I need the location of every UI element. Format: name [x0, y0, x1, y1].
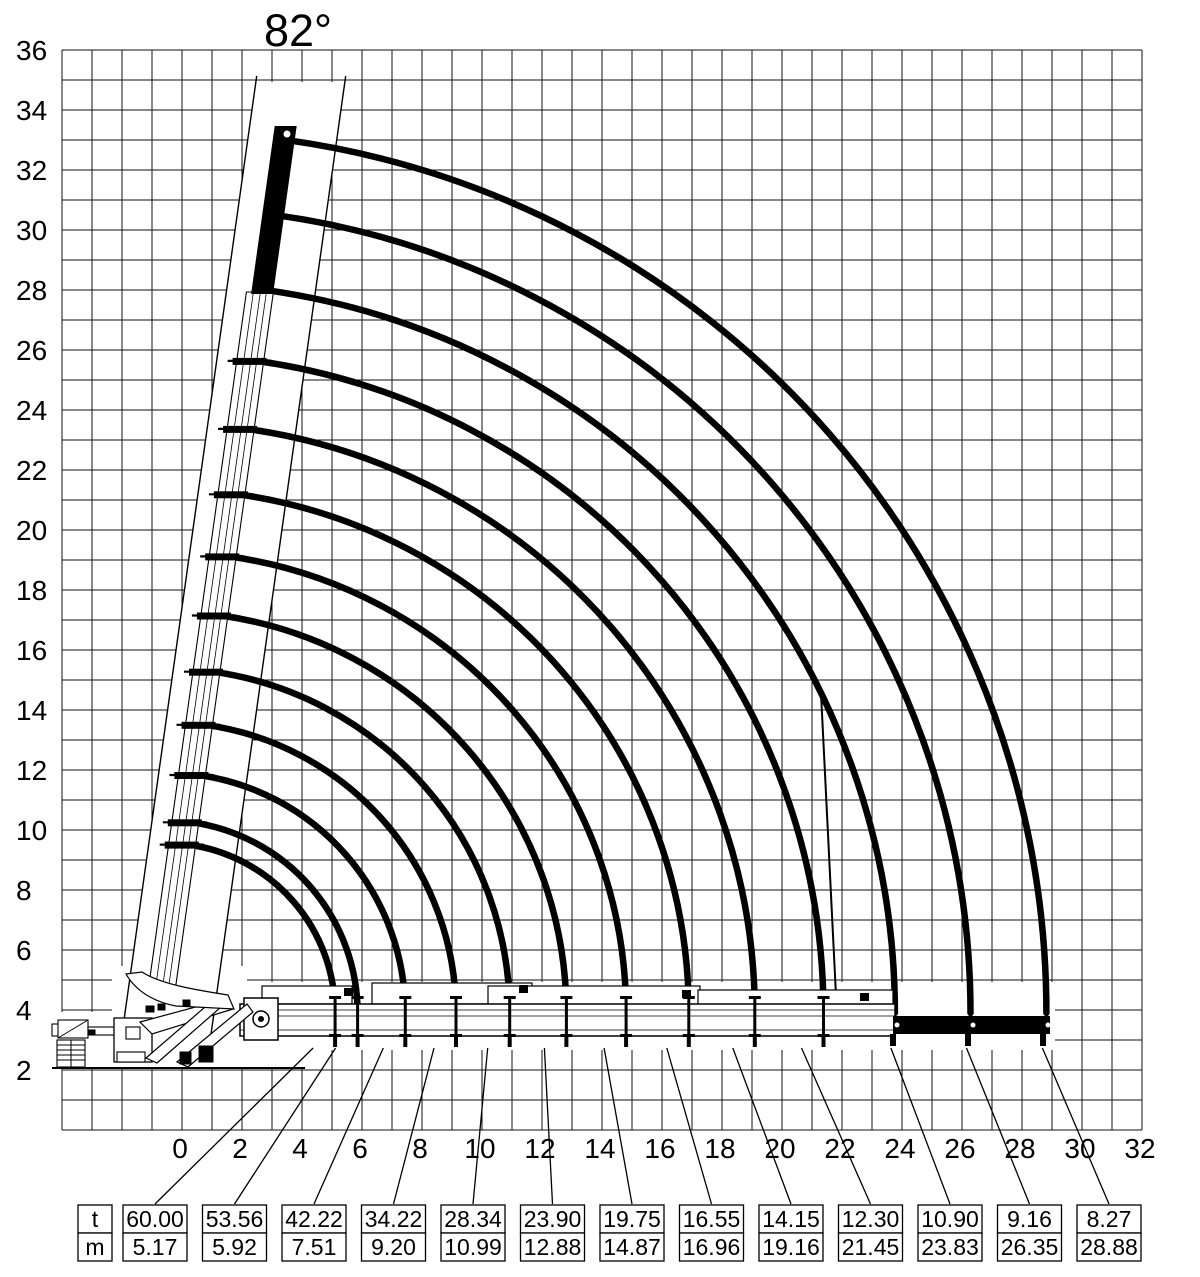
y-axis-labels: 24681012141618202224262830323436 [16, 35, 47, 1086]
pivot-block [158, 1004, 165, 1010]
x-tick-label: 0 [172, 1133, 188, 1164]
y-tick-label: 10 [16, 815, 47, 846]
radius-value: 21.45 [842, 1234, 900, 1260]
x-axis-labels: 02468101214161820222426283032 [172, 1133, 1155, 1164]
y-tick-label: 4 [16, 995, 32, 1026]
boom-collar-hook [687, 1037, 691, 1047]
load-curve [221, 616, 567, 1014]
boom-collar-bottom-tick [560, 1034, 572, 1037]
radius-value: 23.83 [921, 1234, 979, 1260]
boom-collar-hook [454, 1037, 458, 1047]
load-table: t m 60.005.1753.565.9242.227.5134.229.20… [78, 1205, 1141, 1261]
radius-value: 14.87 [603, 1234, 661, 1260]
x-tick-label: 4 [292, 1133, 308, 1164]
load-curve [257, 361, 824, 1013]
radius-value: 26.35 [1001, 1234, 1059, 1260]
y-tick-label: 36 [16, 35, 47, 66]
radius-value: 7.51 [292, 1234, 337, 1260]
load-value: 9.16 [1007, 1206, 1052, 1232]
carrier-foot [117, 1052, 145, 1062]
boom-collar-bottom-tick [352, 1034, 364, 1037]
table-cells: 60.005.1753.565.9242.227.5134.229.2028.3… [123, 1205, 1141, 1261]
pivot-block [183, 1000, 190, 1006]
load-curve [277, 215, 970, 1013]
radius-value: 5.17 [133, 1234, 178, 1260]
boom-head-sheave-hole [284, 131, 291, 138]
x-tick-label: 2 [232, 1133, 248, 1164]
x-tick-label: 22 [824, 1133, 855, 1164]
radius-value: 16.96 [683, 1234, 741, 1260]
extension-hook [965, 1034, 971, 1046]
x-tick-label: 10 [464, 1133, 495, 1164]
table-row-label-m: m [85, 1234, 104, 1260]
boom-collar-top-tick [620, 996, 632, 999]
support-pad [199, 1046, 213, 1062]
boom-collar-hook [564, 1037, 568, 1047]
load-value: 16.55 [683, 1206, 741, 1232]
boom-collar-top-tick [683, 996, 695, 999]
boom-collar-top-tick [352, 996, 364, 999]
load-value: 19.75 [603, 1206, 661, 1232]
y-tick-label: 8 [16, 875, 32, 906]
load-value: 53.56 [206, 1206, 264, 1232]
y-tick-label: 34 [16, 95, 47, 126]
table-leader-line [314, 1048, 383, 1204]
y-tick-label: 14 [16, 695, 47, 726]
x-tick-label: 28 [1004, 1133, 1035, 1164]
extension-pin-hole [1046, 1023, 1051, 1028]
boom-collar-top-tick [450, 996, 462, 999]
x-tick-label: 6 [352, 1133, 368, 1164]
radius-value: 28.88 [1080, 1234, 1138, 1260]
load-value: 10.90 [921, 1206, 979, 1232]
boom-collar-top-tick [399, 996, 411, 999]
boom-collar [565, 997, 568, 1039]
x-tick-label: 14 [584, 1133, 615, 1164]
boom-collar-top-tick [329, 996, 341, 999]
table-leader-line [155, 1048, 313, 1204]
hitch-block [89, 1030, 95, 1035]
table-leader-line [891, 1048, 950, 1204]
load-curve [288, 140, 1047, 1013]
x-tick-label: 12 [524, 1133, 555, 1164]
boom-angle-label: 82° [264, 5, 332, 56]
radius-value: 10.99 [444, 1234, 502, 1260]
boom-plate-lock [860, 993, 869, 1001]
boom-collar-bottom-tick [620, 1034, 632, 1037]
extension-hook [1040, 1034, 1046, 1046]
x-tick-label: 32 [1124, 1133, 1155, 1164]
load-value: 34.22 [365, 1206, 423, 1232]
pivot-block [146, 1006, 154, 1012]
boom-collar-bottom-tick [329, 1034, 341, 1037]
table-leader-line [667, 1048, 712, 1204]
table-leader-line [604, 1048, 632, 1204]
y-tick-label: 12 [16, 755, 47, 786]
boom-collar [687, 997, 690, 1039]
boom-collar [625, 997, 628, 1039]
boom-collar-hook [508, 1037, 512, 1047]
load-curve [229, 556, 626, 1013]
y-tick-label: 18 [16, 575, 47, 606]
x-tick-label: 20 [764, 1133, 795, 1164]
radius-value: 5.92 [212, 1234, 257, 1260]
extension-pin-hole [971, 1023, 976, 1028]
carrier-window [126, 1027, 140, 1039]
boom-collar [822, 997, 825, 1039]
radius-value: 19.16 [762, 1234, 820, 1260]
table-leader-line [544, 1048, 552, 1204]
boom-collar-bottom-tick [399, 1034, 411, 1037]
boom-collar-hook [822, 1037, 826, 1047]
boom-collar [508, 997, 511, 1039]
x-tick-label: 18 [704, 1133, 735, 1164]
boom-collar-top-tick [749, 996, 761, 999]
y-tick-label: 6 [16, 935, 32, 966]
boom-collar-bottom-tick [683, 1034, 695, 1037]
load-value: 23.90 [524, 1206, 582, 1232]
support-pad [180, 1052, 191, 1064]
boom-plate-lock [519, 985, 528, 993]
boom-collar [404, 997, 407, 1039]
boom-collar-bottom-tick [749, 1034, 761, 1037]
table-leader-line [235, 1048, 336, 1204]
y-tick-label: 24 [16, 395, 47, 426]
x-tick-label: 24 [884, 1133, 915, 1164]
load-value: 60.00 [126, 1206, 184, 1232]
y-tick-label: 22 [16, 455, 47, 486]
boom-collar-bottom-tick [450, 1034, 462, 1037]
load-value: 12.30 [842, 1206, 900, 1232]
chart-svg: 24681012141618202224262830323436 0246810… [0, 0, 1200, 1277]
boom-collar-hook [753, 1037, 757, 1047]
y-tick-label: 28 [16, 275, 47, 306]
boom-collar-top-tick [818, 996, 830, 999]
load-value: 14.15 [762, 1206, 820, 1232]
y-tick-label: 26 [16, 335, 47, 366]
boom-collar [753, 997, 756, 1039]
boom-collar [334, 997, 337, 1039]
table-leader-line [394, 1048, 435, 1204]
extension-pin-hole [895, 1023, 900, 1028]
x-tick-label: 16 [644, 1133, 675, 1164]
boom-collar [455, 997, 458, 1039]
boom-collar-top-tick [560, 996, 572, 999]
boom-collar-top-tick [504, 996, 516, 999]
extension-hook [890, 1034, 896, 1046]
table-leader-line [473, 1048, 488, 1204]
crane-load-chart: 24681012141618202224262830323436 0246810… [0, 0, 1200, 1277]
y-tick-label: 2 [16, 1055, 32, 1086]
boom-collar-hook [333, 1037, 337, 1047]
y-tick-label: 20 [16, 515, 47, 546]
load-value: 8.27 [1087, 1206, 1132, 1232]
y-tick-label: 32 [16, 155, 47, 186]
y-tick-label: 16 [16, 635, 47, 666]
boom-collar-bottom-tick [818, 1034, 830, 1037]
boom-plate-lock [344, 988, 353, 996]
x-tick-label: 30 [1064, 1133, 1095, 1164]
load-value: 42.22 [285, 1206, 343, 1232]
boom-collar-hook [403, 1037, 407, 1047]
radius-value: 12.88 [524, 1234, 582, 1260]
load-value: 28.34 [444, 1206, 502, 1232]
boom-foot-pin [258, 1016, 264, 1022]
boom-collar-hook [356, 1037, 360, 1047]
table-leader-line [967, 1048, 1030, 1204]
x-tick-label: 8 [412, 1133, 428, 1164]
boom-collar-hook [624, 1037, 628, 1047]
table-row-label-t: t [92, 1206, 99, 1232]
boom-collar [356, 997, 359, 1039]
boom-collar-bottom-tick [504, 1034, 516, 1037]
x-tick-label: 26 [944, 1133, 975, 1164]
y-tick-label: 30 [16, 215, 47, 246]
radius-value: 9.20 [371, 1234, 416, 1260]
